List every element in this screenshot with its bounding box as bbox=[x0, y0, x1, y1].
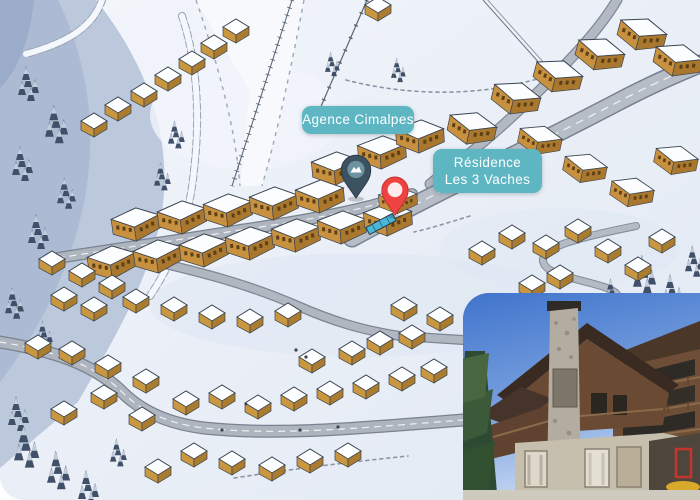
residence-map-pin[interactable] bbox=[372, 169, 418, 221]
listing-map-screenshot: Agence Cimalpes Résidence Les 3 Vaches bbox=[0, 0, 700, 500]
residence-label[interactable]: Résidence Les 3 Vaches bbox=[433, 149, 542, 193]
agency-label[interactable]: Agence Cimalpes bbox=[302, 106, 414, 134]
residence-label-line1: Résidence bbox=[454, 154, 521, 171]
chimney-plaque bbox=[553, 369, 577, 407]
resort-map[interactable]: Agence Cimalpes Résidence Les 3 Vaches bbox=[0, 0, 700, 500]
chalet-photo-illustration bbox=[463, 293, 700, 500]
agency-label-text: Agence Cimalpes bbox=[302, 111, 414, 128]
residence-label-line2: Les 3 Vaches bbox=[445, 171, 531, 188]
property-photo-inset[interactable] bbox=[463, 293, 700, 500]
